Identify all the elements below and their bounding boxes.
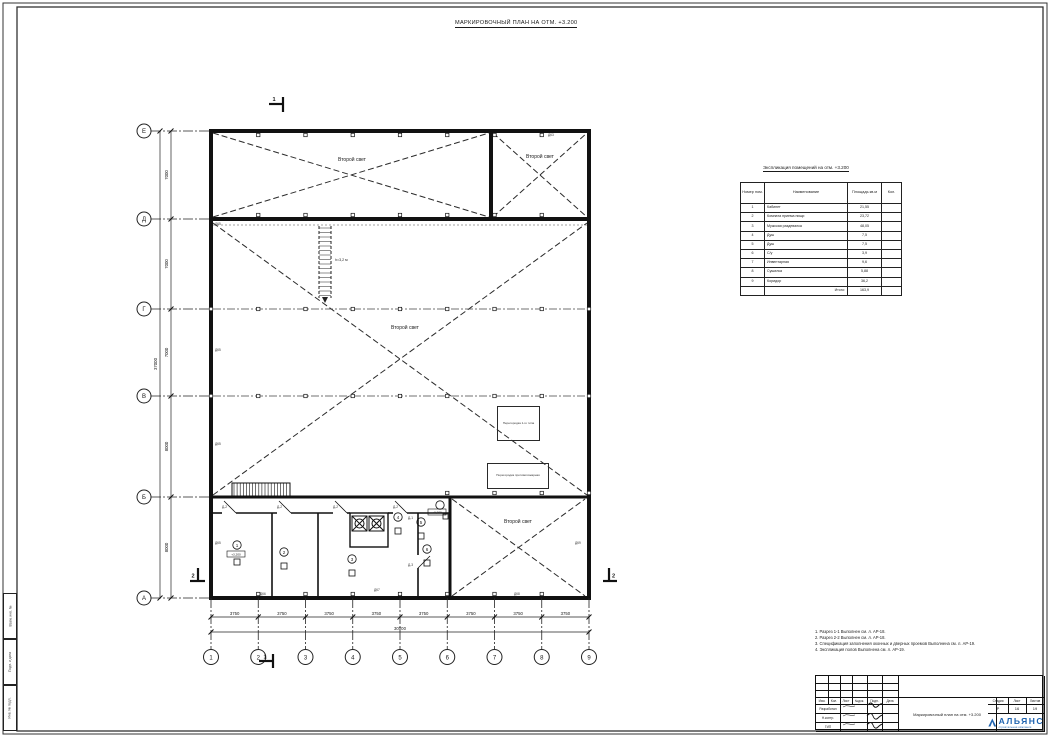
door-tag: Д-2 [393, 505, 398, 509]
wall-tag: ДК5 [215, 442, 221, 446]
table-cell: 5,88 [848, 268, 882, 277]
table-cell [882, 277, 902, 286]
svg-text:8000: 8000 [164, 441, 169, 451]
svg-text:5: 5 [420, 520, 423, 525]
strip-cell: Инв. № подл. [3, 685, 17, 731]
svg-text:4: 4 [351, 655, 355, 661]
table-cell: 36,2 [848, 277, 882, 286]
void-label: Второй свет [501, 520, 535, 526]
company-name: АЛЬЯНС [999, 716, 1044, 726]
table-cell [882, 240, 902, 249]
table-cell: Сушилка [765, 268, 848, 277]
wall-tag: ДК6 [260, 592, 266, 596]
room-marks: 1 2 3 4 5 6 [236, 515, 429, 562]
void-label: Второй свет [335, 158, 369, 164]
tb-signature-cell [867, 722, 883, 732]
wall-tag: ДК9 [575, 541, 581, 545]
strip-cell: Подп. и дата [3, 639, 17, 685]
company-subtitle: строительная компания [999, 726, 1032, 729]
svg-text:2: 2 [612, 574, 615, 580]
void-label: Второй свет [388, 326, 422, 332]
svg-text:3750: 3750 [372, 611, 382, 616]
alliance-triangle-icon [988, 716, 997, 729]
svg-text:7: 7 [493, 655, 497, 661]
svg-text:3750: 3750 [561, 611, 571, 616]
note-line: 4. Экспликация полов Выполнена см. л. АР… [815, 647, 905, 653]
drawing-sheet: +3,200 +3,200 1 2 3 4 5 6 [0, 0, 1051, 738]
svg-text:6: 6 [446, 655, 450, 661]
table-cell: 23,72 [848, 213, 882, 222]
void-label: Второй свет [523, 155, 557, 161]
company-logo: АЛЬЯНС строительная компания [988, 713, 1045, 732]
table-row: 6С/у3,9 [741, 249, 902, 258]
table-header: Наименование [765, 183, 848, 204]
table-cell: 48,05 [848, 222, 882, 231]
table-row: 7Инвентарная9,6 [741, 259, 902, 268]
svg-text:37000: 37000 [153, 357, 158, 370]
table-cell: С/у [765, 249, 848, 258]
svg-text:6: 6 [426, 547, 429, 552]
table-cell: 2 [741, 213, 765, 222]
table-header: Номер пом. [741, 183, 765, 204]
dimension-ticks [158, 129, 592, 635]
plan-linework: +3,200 +3,200 1 2 3 4 5 6 [0, 0, 1051, 738]
table-cell [882, 249, 902, 258]
strip-cell: Взам. инв. № [3, 593, 17, 639]
svg-text:8: 8 [540, 655, 544, 661]
svg-text:3: 3 [304, 655, 308, 661]
void-diagonals [213, 133, 587, 596]
table-cell: 4 [741, 231, 765, 240]
title-block: Изм. Кол. Лист №док. Подп. Дата Разработ… [815, 675, 1043, 730]
svg-text:1: 1 [209, 655, 213, 661]
svg-text:5: 5 [398, 655, 402, 661]
svg-text:3750: 3750 [419, 611, 429, 616]
door-tag: Д-2 [277, 505, 282, 509]
svg-text:1: 1 [236, 543, 239, 548]
table-cell: 7 [741, 259, 765, 268]
svg-text:Г: Г [142, 307, 146, 313]
table-cell [882, 286, 902, 295]
svg-text:4: 4 [397, 515, 400, 520]
table-cell [882, 204, 902, 213]
door-tag: Д-3 [408, 563, 413, 567]
dimension-values: 7000 7000 7000 8000 8000 37000 3750 3750… [153, 170, 571, 632]
table-cell: Душ [765, 240, 848, 249]
table-cell: 5 [741, 240, 765, 249]
table-cell: 8 [741, 268, 765, 277]
svg-text:3750: 3750 [230, 611, 240, 616]
table-cell [882, 222, 902, 231]
partition-note-box: Перегородка 1-го типа [497, 406, 540, 441]
axis-lines [151, 131, 589, 649]
table-cell: 3,9 [848, 249, 882, 258]
level-tag: +3,200 [432, 511, 442, 515]
table-cell [882, 231, 902, 240]
table-header: Площадь кв.м [848, 183, 882, 204]
table-cell: 3 [741, 222, 765, 231]
svg-text:3750: 3750 [466, 611, 476, 616]
table-row: 4Душ7,5 [741, 231, 902, 240]
tb-doc-title: Маркировочный план на отм. +3.200 [898, 697, 997, 732]
column-markers [209, 133, 590, 595]
tb-name-cell [840, 722, 868, 732]
svg-text:9: 9 [587, 655, 591, 661]
level-tag: +3,200 [231, 553, 241, 557]
table-cell: Итого: [765, 286, 848, 295]
table-row: 8Сушилка5,88 [741, 268, 902, 277]
door-tag: Д-2 [222, 505, 227, 509]
section-numbers: 1 1 2 2 [191, 97, 615, 661]
svg-text:3: 3 [351, 557, 354, 562]
table-cell: Инвентарная [765, 259, 848, 268]
svg-text:Е: Е [142, 129, 146, 135]
ladder-height-note: h=3,2 м [335, 258, 348, 262]
ladder-symbol [319, 226, 331, 303]
wall-tag: ДК5 [215, 541, 221, 545]
svg-text:Д: Д [142, 217, 146, 223]
svg-text:Б: Б [142, 495, 146, 501]
svg-text:7000: 7000 [164, 259, 169, 269]
table-cell: Мужская раздевалка [765, 222, 848, 231]
axis-bubbles [137, 124, 597, 665]
table-cell: 163,9 [848, 286, 882, 295]
table-cell: Кабинет [765, 204, 848, 213]
table-header-row: Номер пом. Наименование Площадь кв.м Кол… [741, 183, 902, 204]
svg-text:30000: 30000 [394, 626, 407, 631]
door-tag: Д-2 [333, 505, 338, 509]
table-cell: 7,5 [848, 240, 882, 249]
explication-title: Экспликация помещений на отм. +3.200 [763, 165, 849, 172]
table-total-row: Итого:163,9 [741, 286, 902, 295]
table-cell [741, 286, 765, 295]
ladder-rungs [319, 228, 331, 296]
svg-text:7000: 7000 [164, 170, 169, 180]
door-tag: Д-1 [408, 516, 413, 520]
wall-tag: ДК8 [514, 592, 520, 596]
svg-text:3750: 3750 [324, 611, 334, 616]
tb-date-cell [882, 722, 899, 732]
table-cell: 6 [741, 249, 765, 258]
stair-hatch [234, 483, 290, 497]
svg-text:2: 2 [283, 550, 286, 555]
svg-text:1: 1 [272, 97, 275, 103]
table-cell: 9 [741, 277, 765, 286]
wall-tag: ДК5 [215, 348, 221, 352]
doc-code-cell [898, 676, 1045, 698]
table-row: 5Душ7,5 [741, 240, 902, 249]
svg-text:3750: 3750 [277, 611, 287, 616]
sheet-title: МАРКИРОВОЧНЫЙ ПЛАН НА ОТМ. +3.200 [455, 20, 577, 28]
wall-tag: ДК7 [374, 588, 380, 592]
svg-text:В: В [142, 394, 146, 400]
table-row: 1Кабинет21,55 [741, 204, 902, 213]
section-markers [190, 97, 617, 668]
table-cell: Комната приема пищи [765, 213, 848, 222]
table-row: 9Коридор36,2 [741, 277, 902, 286]
wall-tag: ДК3 [548, 133, 554, 137]
table-cell: 7,5 [848, 231, 882, 240]
explication-table: Номер пом. Наименование Площадь кв.м Кол… [740, 182, 902, 296]
sheet-frame [3, 3, 1047, 734]
table-header: Кол. [882, 183, 902, 204]
svg-text:1: 1 [263, 655, 266, 661]
svg-text:3750: 3750 [513, 611, 523, 616]
svg-text:А: А [142, 596, 146, 602]
svg-text:8000: 8000 [164, 542, 169, 552]
table-cell: Душ [765, 231, 848, 240]
dimension-lines [160, 131, 589, 632]
table-row: 3Мужская раздевалка48,05 [741, 222, 902, 231]
wall-tag: ДК5 [215, 222, 221, 226]
table-cell: 9,6 [848, 259, 882, 268]
table-cell: 1 [741, 204, 765, 213]
table-cell [882, 268, 902, 277]
fixture-symbols [227, 501, 448, 576]
table-cell [882, 213, 902, 222]
tb-role: ГИП [816, 722, 841, 732]
table-cell [882, 259, 902, 268]
svg-text:2: 2 [191, 574, 194, 580]
shower-symbols [352, 516, 384, 531]
svg-text:7000: 7000 [164, 347, 169, 357]
table-row: 2Комната приема пищи23,72 [741, 213, 902, 222]
table-cell: Коридор [765, 277, 848, 286]
table-cell: 21,55 [848, 204, 882, 213]
partition-note-box: Перегородка противопожарная [487, 463, 549, 489]
